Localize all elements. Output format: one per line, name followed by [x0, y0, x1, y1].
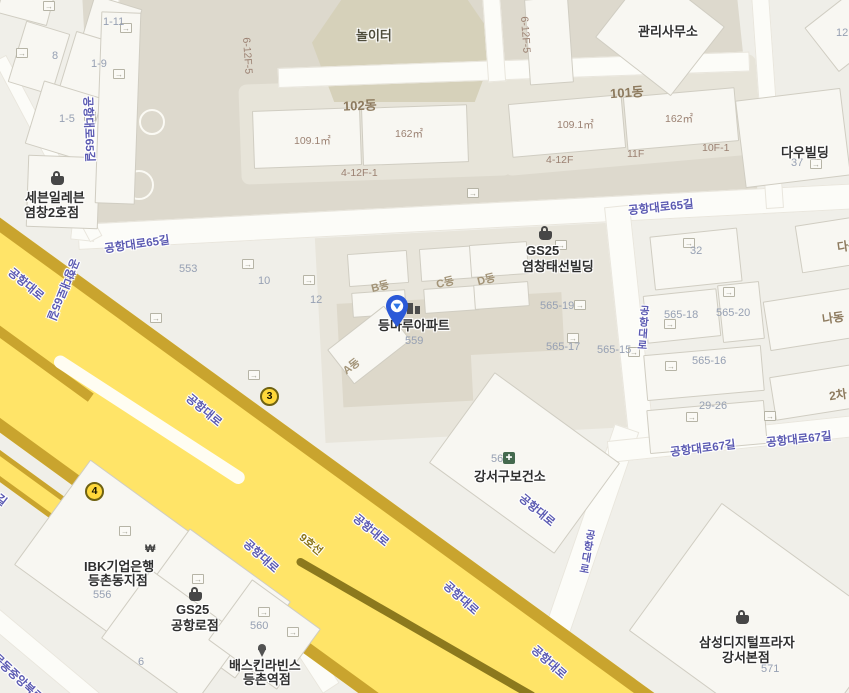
map-pin-marker[interactable]	[386, 295, 408, 332]
lot-number: 1-9	[91, 58, 107, 70]
lot-number: 565-16	[692, 355, 726, 367]
lot-number: 32	[690, 245, 702, 257]
building-spec: 4-12F-1	[341, 167, 378, 179]
apartment-building-icon	[407, 303, 420, 314]
building-label-101: 101동	[609, 81, 644, 102]
building-spec: 11F	[627, 148, 644, 160]
health-cross-icon: ✚	[503, 452, 515, 464]
entrance-icon: →	[258, 607, 270, 617]
building-label-dong-na: 나동	[821, 308, 845, 328]
poi-samsung-plaza-branch[interactable]: 강서본점	[722, 647, 770, 666]
building-spec: 162㎡	[665, 111, 693, 126]
entrance-icon: →	[723, 287, 735, 297]
building	[649, 228, 742, 291]
lot-number: 29-26	[699, 400, 727, 412]
lot-number: 56	[491, 453, 503, 465]
road-label-gonghang-daero: 공항대로	[634, 305, 652, 352]
building	[95, 11, 142, 204]
lot-number: 6	[138, 656, 144, 668]
lot-number: 1-5	[59, 113, 75, 125]
building-label-dong-da: 다동	[836, 236, 849, 256]
building-spec: 10F-1	[702, 142, 729, 154]
building	[643, 345, 765, 401]
road-label-gonghang-65: 공항대로65길	[80, 96, 98, 162]
entrance-icon: →	[287, 627, 299, 637]
building-spec: 109.1㎡	[557, 117, 594, 132]
subway-exit-3-badge[interactable]: 3	[260, 387, 279, 406]
building-dong-c	[423, 285, 480, 314]
map-canvas[interactable]: → → → → → → → → → → → → → → → → → → → → …	[0, 0, 849, 693]
entrance-icon: →	[16, 48, 28, 58]
entrance-icon: →	[248, 370, 260, 380]
building-spec: 4-12F	[546, 154, 573, 166]
poi-health-center[interactable]: 강서구보건소	[474, 466, 546, 485]
poi-gs25-yeomchang-branch[interactable]: 염창태선빌딩	[522, 256, 594, 275]
building-dawoo	[735, 88, 849, 188]
entrance-icon: →	[43, 1, 55, 11]
rotary-circle	[139, 109, 165, 135]
store-basket-icon	[539, 231, 552, 240]
lot-number: 10	[258, 275, 270, 287]
lot-number: 565-18	[664, 309, 698, 321]
entrance-icon: →	[467, 188, 479, 198]
entrance-icon: →	[665, 361, 677, 371]
entrance-icon: →	[192, 574, 204, 584]
entrance-icon: →	[574, 300, 586, 310]
entrance-icon: →	[242, 259, 254, 269]
poi-ibk-bank-branch[interactable]: 등촌동지점	[88, 570, 148, 589]
building-spec: 6-12F-5	[240, 37, 255, 75]
lot-number: 559	[405, 335, 423, 347]
lot-number: 565-17	[546, 341, 580, 353]
lot-number: 565-20	[716, 307, 750, 319]
building-label-cha2: 2차	[828, 385, 848, 404]
poi-mgmt-office[interactable]: 관리사무소	[638, 21, 698, 40]
lot-number: 560	[250, 620, 268, 632]
playground-label: 놀이터	[356, 25, 392, 44]
lot-number: 12	[310, 294, 322, 306]
entrance-icon: →	[764, 411, 776, 421]
lot-number: 8	[52, 50, 58, 62]
entrance-icon: →	[113, 69, 125, 79]
playground-area	[312, 0, 497, 102]
lot-number: 565-15	[597, 344, 631, 356]
store-basket-icon	[51, 176, 64, 185]
lot-number: 553	[179, 263, 197, 275]
entrance-icon: →	[303, 275, 315, 285]
entrance-icon: →	[686, 412, 698, 422]
building-spec: 162㎡	[395, 126, 423, 141]
store-basket-icon	[736, 615, 749, 624]
lot-number: 556	[93, 589, 111, 601]
building-label-102: 102동	[343, 94, 377, 114]
entrance-icon: →	[119, 526, 131, 536]
poi-seven-eleven-branch[interactable]: 염창2호점	[24, 202, 79, 221]
lot-number: 12	[836, 27, 848, 39]
building-spec: 109.1㎡	[294, 133, 331, 148]
poi-gs25-gonghang-branch[interactable]: 공항로점	[171, 615, 219, 634]
poi-dawoo-bldg[interactable]: 다우빌딩	[781, 142, 829, 161]
building-spec: 6-12F-5	[518, 16, 533, 54]
lot-number: 1-11	[103, 16, 124, 28]
road-label-fragment: 길	[0, 490, 10, 509]
subway-exit-4-badge[interactable]: 4	[85, 482, 104, 501]
lot-number: 565-19	[540, 300, 574, 312]
poi-baskin-robbins-branch[interactable]: 등촌역점	[243, 669, 291, 688]
entrance-icon: →	[150, 313, 162, 323]
bank-won-icon: ₩	[145, 543, 155, 555]
store-basket-icon	[189, 592, 202, 601]
